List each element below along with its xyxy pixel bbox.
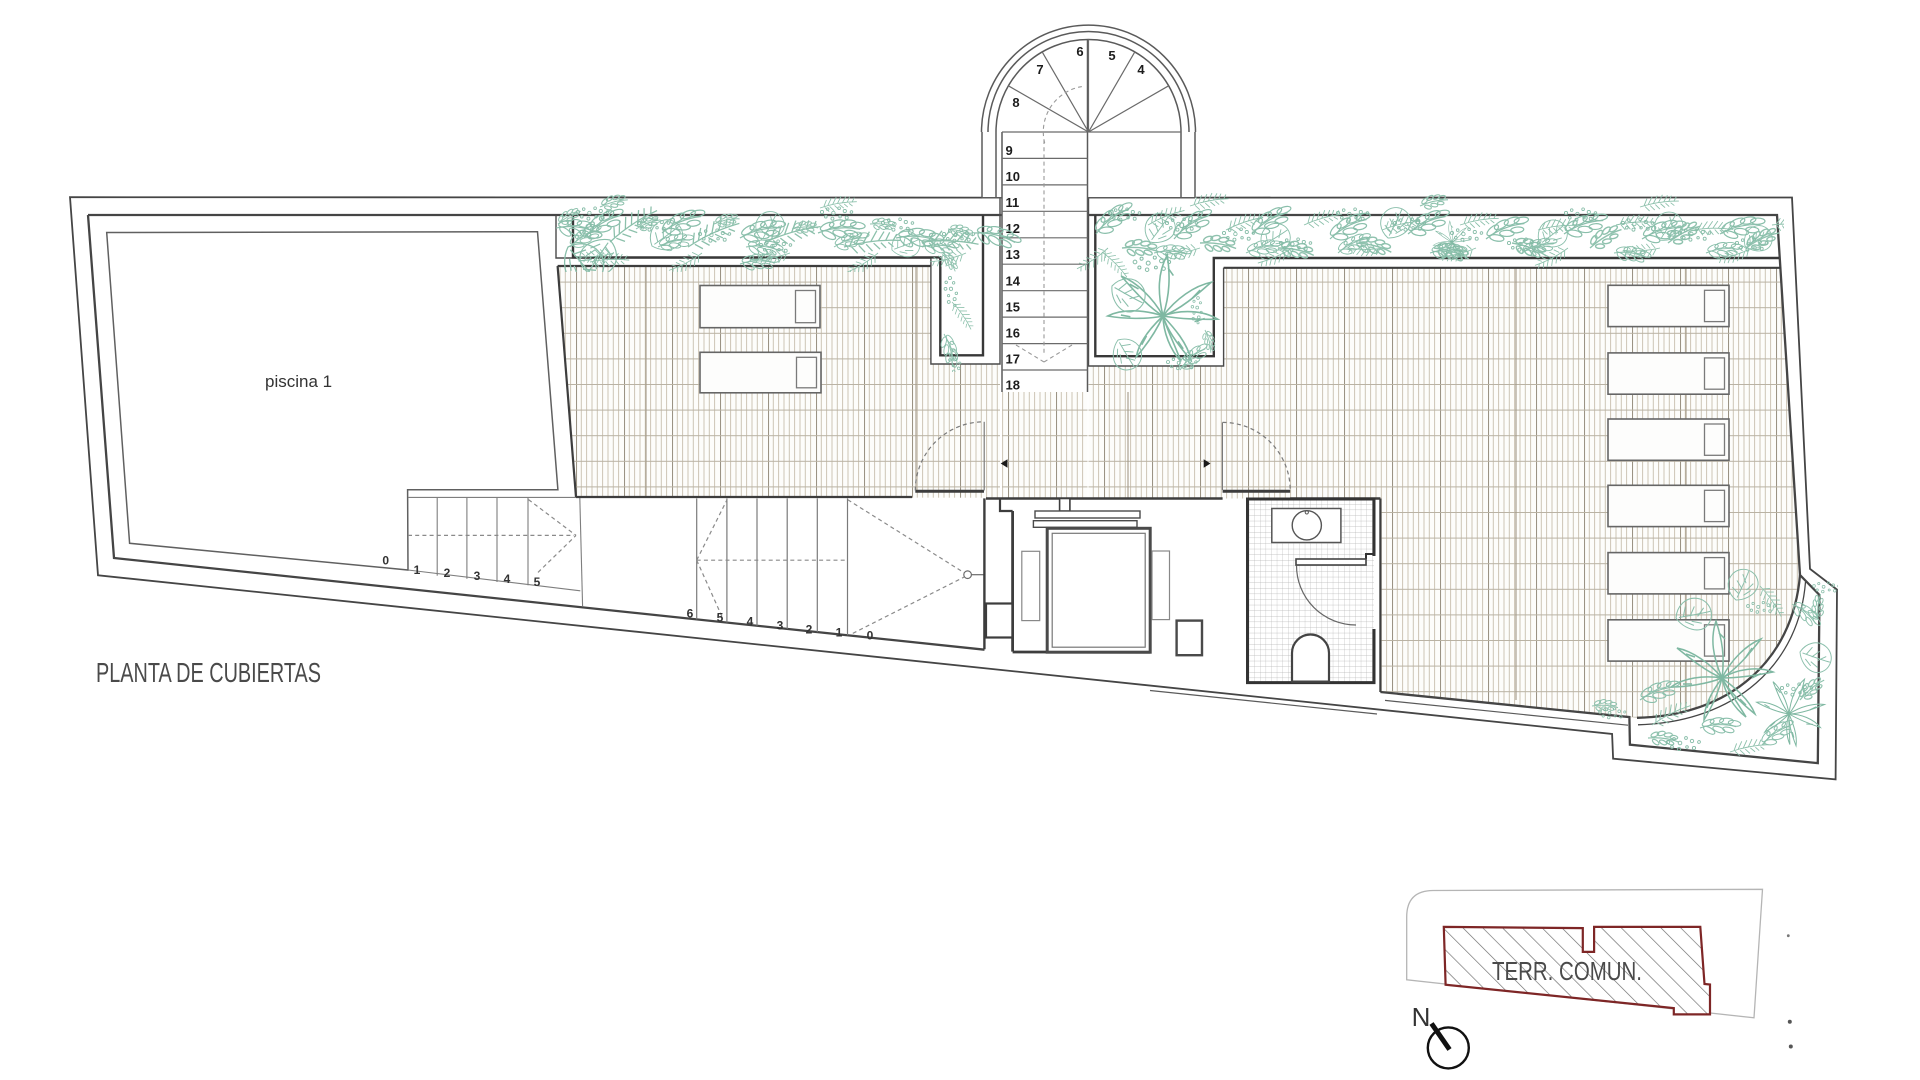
svg-text:11: 11 [1006, 195, 1020, 210]
svg-text:17: 17 [1006, 352, 1020, 367]
svg-text:9: 9 [1006, 143, 1013, 158]
svg-text:13: 13 [1006, 247, 1020, 262]
svg-text:6: 6 [687, 607, 694, 621]
svg-text:5: 5 [534, 575, 541, 589]
svg-text:4: 4 [504, 572, 511, 586]
svg-text:0: 0 [867, 629, 874, 643]
svg-text:10: 10 [1006, 169, 1020, 184]
svg-text:4: 4 [1137, 62, 1145, 77]
svg-text:3: 3 [777, 619, 784, 633]
svg-text:7: 7 [1036, 62, 1043, 77]
svg-text:5: 5 [1108, 48, 1115, 63]
svg-text:1: 1 [414, 563, 421, 577]
svg-text:6: 6 [1076, 44, 1083, 59]
svg-text:1: 1 [836, 626, 843, 640]
svg-text:15: 15 [1006, 299, 1020, 314]
svg-text:3: 3 [474, 569, 481, 583]
svg-text:0: 0 [382, 554, 389, 568]
svg-text:14: 14 [1006, 273, 1021, 288]
svg-text:PLANTA DE CUBIERTAS: PLANTA DE CUBIERTAS [96, 657, 321, 688]
svg-text:2: 2 [806, 623, 813, 637]
svg-text:5: 5 [717, 611, 724, 625]
svg-text:16: 16 [1006, 326, 1020, 341]
svg-text:4: 4 [747, 615, 754, 629]
svg-text:TERR. COMUN.: TERR. COMUN. [1492, 956, 1642, 986]
svg-text:18: 18 [1006, 378, 1020, 393]
svg-text:8: 8 [1012, 95, 1019, 110]
svg-text:N: N [1412, 1002, 1431, 1032]
svg-text:2: 2 [444, 566, 451, 580]
svg-text:piscina 1: piscina 1 [265, 372, 332, 391]
